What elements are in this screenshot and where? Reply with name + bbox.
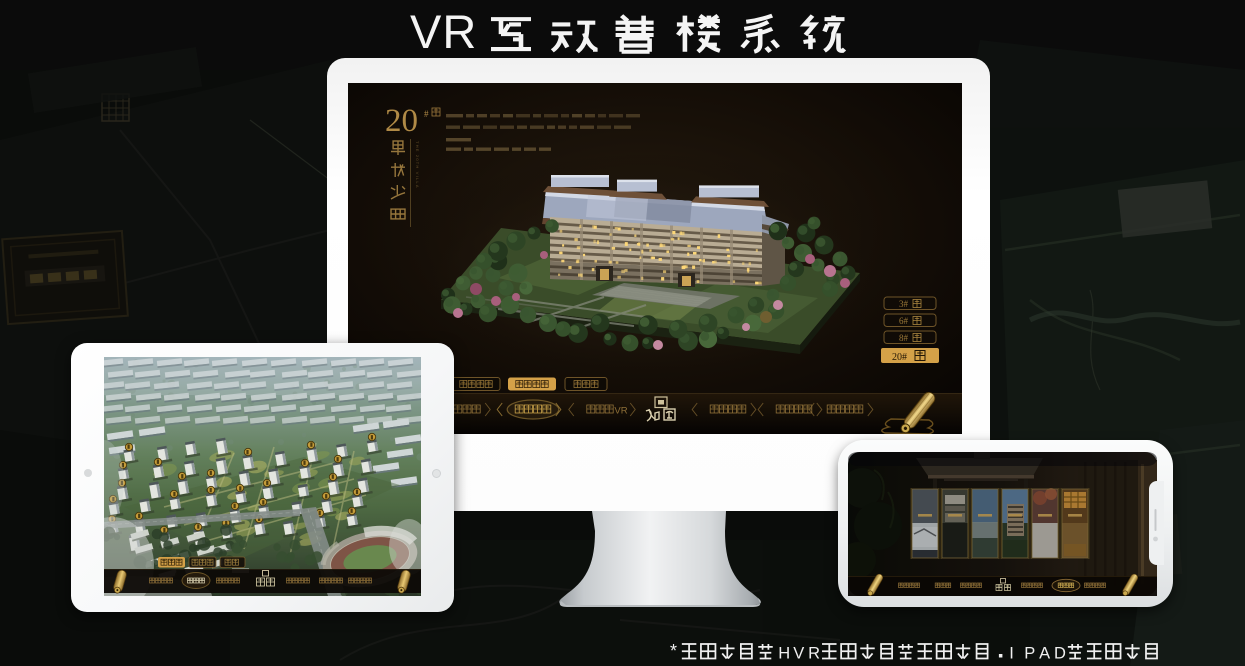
svg-text:20: 20	[385, 103, 418, 139]
svg-text:D: D	[1054, 645, 1066, 663]
svg-text:R: R	[808, 645, 820, 663]
svg-text:#: #	[424, 109, 429, 119]
svg-text:*: *	[670, 641, 677, 661]
svg-text:3#: 3#	[899, 299, 909, 309]
svg-text:THE 20TH VILLA: THE 20TH VILLA	[415, 141, 420, 189]
svg-text:VR: VR	[410, 5, 477, 56]
svg-text:P: P	[1024, 645, 1035, 663]
svg-text:20#: 20#	[892, 352, 907, 363]
svg-text:A: A	[1039, 645, 1050, 663]
svg-text:H: H	[778, 645, 790, 663]
svg-text:I: I	[1009, 645, 1014, 663]
svg-text:8#: 8#	[899, 333, 909, 343]
svg-text:V: V	[793, 645, 804, 663]
svg-text:VR: VR	[614, 406, 627, 417]
svg-text:6#: 6#	[899, 316, 909, 326]
